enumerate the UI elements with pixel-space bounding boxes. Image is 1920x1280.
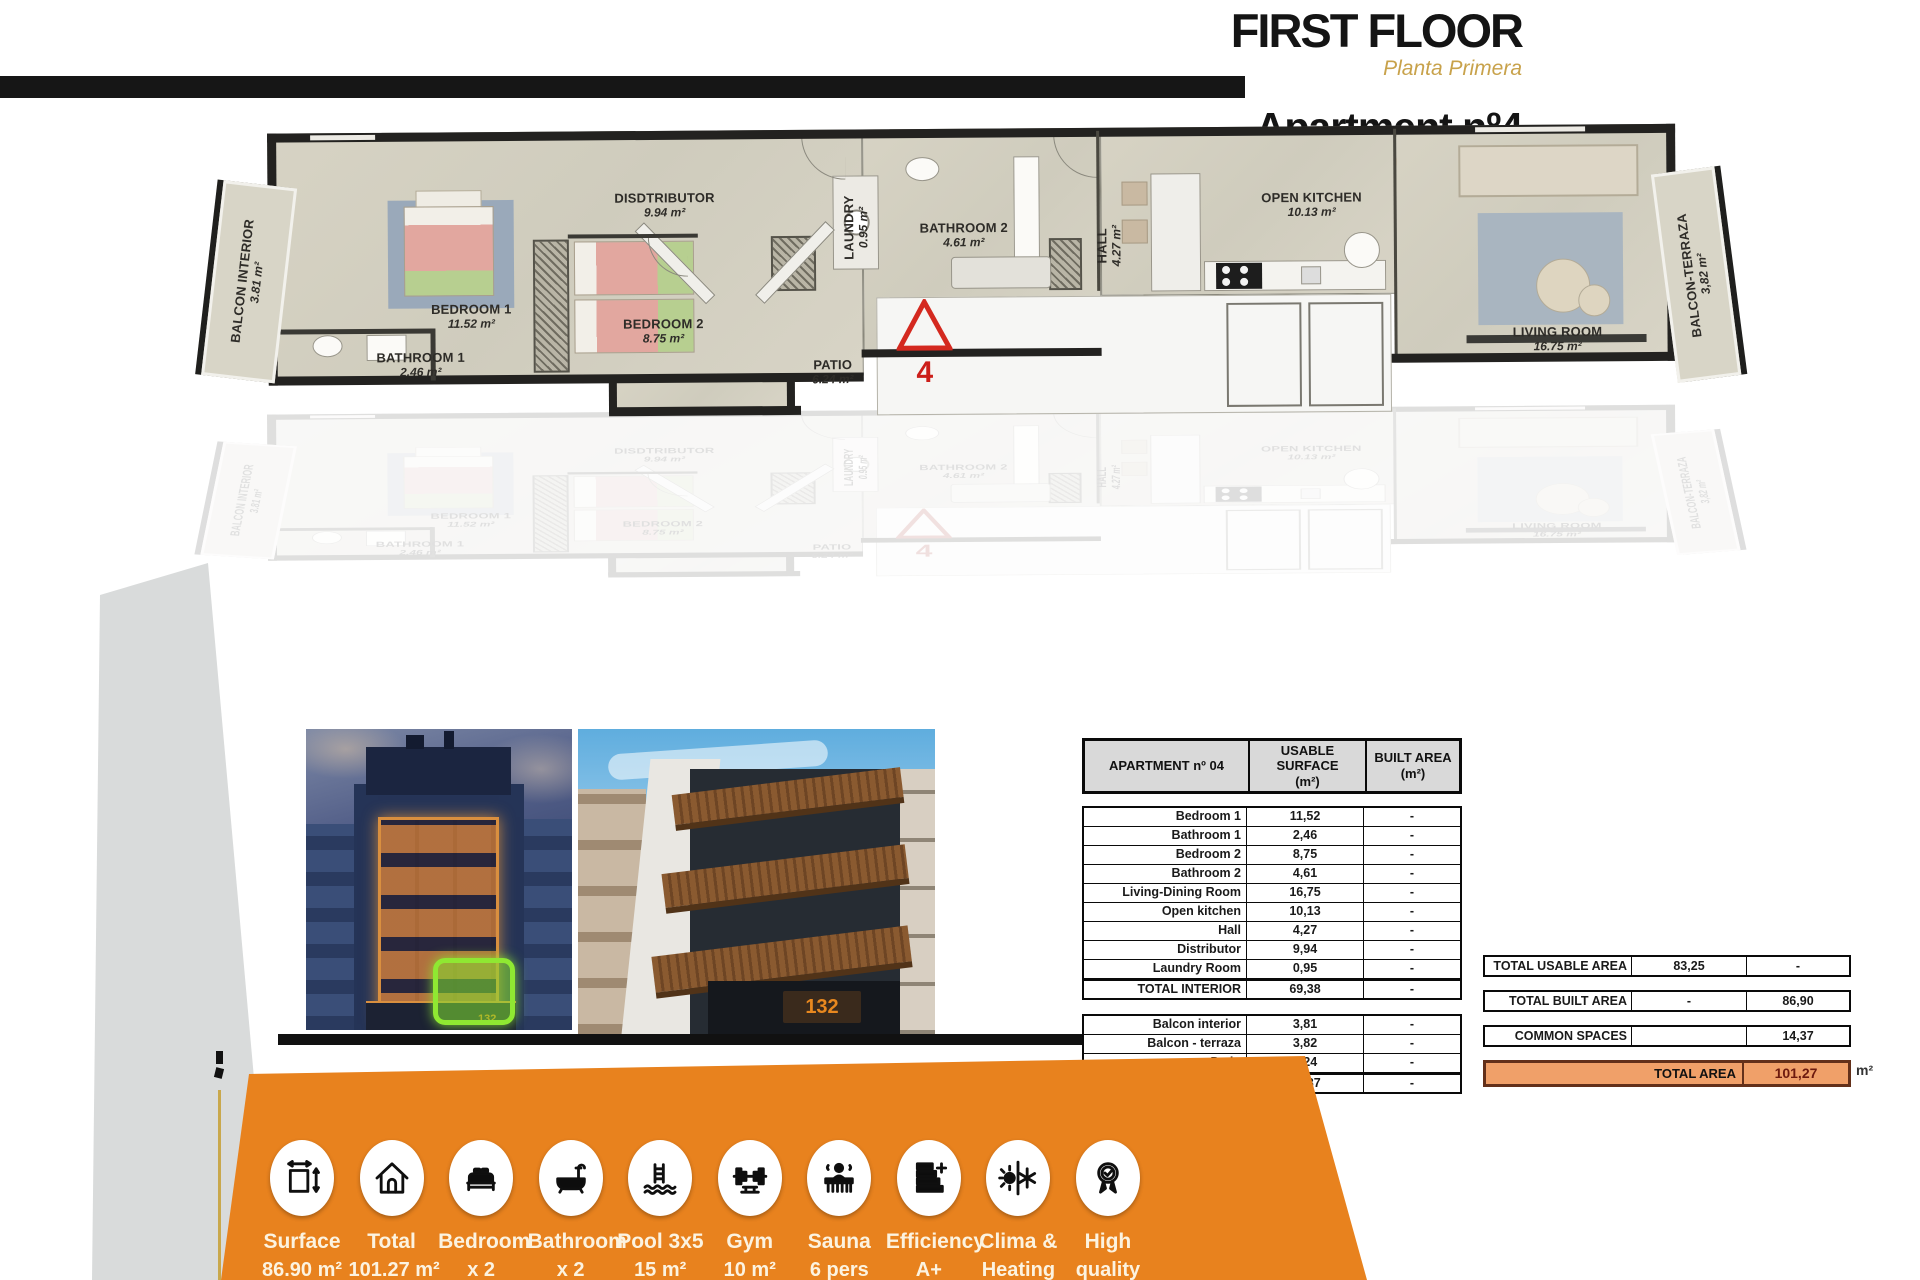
apartment-highlight-box xyxy=(433,958,515,1025)
amenity-value: 10 m² xyxy=(707,1259,793,1280)
wall xyxy=(787,376,795,412)
amenity-label: Sauna xyxy=(796,1230,882,1253)
room-label-bathroom2: BATHROOM 2 4.61 m² xyxy=(919,220,1008,250)
table-row: Distributor 9,94 - xyxy=(1084,941,1460,960)
kitchen-boiler xyxy=(1343,468,1379,489)
amenity-badge xyxy=(270,1140,334,1216)
high-quality-icon xyxy=(1088,1158,1128,1198)
room-label-patio: PATIO 6.24 m² xyxy=(811,542,852,559)
usable-surface-column-header: USABLE SURFACE (m²) xyxy=(1248,741,1365,791)
living-sofa xyxy=(1458,144,1638,197)
day-render-photo: 132 xyxy=(578,729,935,1034)
triangle-marker-icon xyxy=(896,508,952,539)
amenity-value: Heating xyxy=(975,1259,1061,1280)
built-area-column-header: BUILT AREA (m²) xyxy=(1365,741,1459,791)
amenity-value: 15 m² xyxy=(617,1259,703,1280)
totals-row: COMMON SPACES 14,37 xyxy=(1483,1025,1851,1047)
kitchen-stove xyxy=(1216,487,1262,502)
amenity-item: Surface 86.90 m² xyxy=(259,1140,345,1280)
total-area-value: 101,27 xyxy=(1744,1063,1848,1084)
table-row: Bathroom 2 4,61 - xyxy=(1084,865,1460,884)
apartment-number: 4 xyxy=(896,543,952,561)
surface-table-header: APARTMENT nº 04 USABLE SURFACE (m²) BUIL… xyxy=(1082,738,1462,794)
table-row: Open kitchen 10,13 - xyxy=(1084,903,1460,922)
decoration-gold-line xyxy=(218,1090,221,1280)
floor-subtitle: Planta Primera xyxy=(1231,57,1522,81)
bedroom1-bed xyxy=(403,456,493,509)
table-row: Balcon - terraza 3,82 - xyxy=(1084,1035,1460,1054)
totals-row: TOTAL BUILT AREA - 86,90 xyxy=(1483,990,1851,1012)
room-label-bedroom2: BEDROOM 2 8.75 m² xyxy=(623,316,704,346)
amenity-label: Bathroom xyxy=(528,1230,614,1253)
kitchen-sink xyxy=(1301,488,1321,499)
table-row: Living-Dining Room 16,75 - xyxy=(1084,884,1460,903)
room-label-hall: HALL 4.27 m² xyxy=(1094,465,1123,489)
climate-heating-icon xyxy=(998,1158,1038,1198)
building-wing xyxy=(306,824,361,1030)
bathtub-icon xyxy=(551,1158,591,1198)
living-sofa xyxy=(1458,417,1638,448)
table-row: Balcon interior 3,81 - xyxy=(1084,1016,1460,1035)
table-row: Bathroom 1 2,46 - xyxy=(1084,827,1460,846)
wall xyxy=(609,406,801,416)
amenity-item: Sauna 6 pers xyxy=(796,1140,882,1280)
amenity-value: x 2 xyxy=(438,1259,524,1280)
dimensions-icon xyxy=(282,1158,322,1198)
amenity-label: Clima & xyxy=(975,1230,1061,1253)
kitchen-island xyxy=(1150,435,1200,504)
kitchen-stool xyxy=(1121,181,1147,205)
room-label-distributor: DISDTRIBUTOR 9.94 m² xyxy=(614,190,715,220)
apartment-number-marker: 4 xyxy=(896,508,952,560)
amenity-value: A+ xyxy=(886,1259,972,1280)
building-wing xyxy=(518,819,572,1030)
kitchen-boiler xyxy=(1344,232,1380,268)
energy-efficiency-icon xyxy=(909,1158,949,1198)
amenity-label: High xyxy=(1065,1230,1151,1253)
floor-plan: 4 xyxy=(215,397,1726,582)
kitchen-stool xyxy=(1121,440,1147,454)
neighbor-building xyxy=(896,769,935,1034)
kitchen-stool xyxy=(1121,462,1147,476)
room-label-laundry: LAUNDRY 0.95 m² xyxy=(841,449,870,487)
bathroom2-shower xyxy=(951,256,1051,289)
room-label-bedroom2: BEDROOM 2 8.75 m² xyxy=(623,519,704,536)
amenity-value: x 2 xyxy=(528,1259,614,1280)
amenity-badge xyxy=(986,1140,1050,1216)
triangle-marker-icon xyxy=(896,299,952,351)
wall xyxy=(1392,352,1677,363)
bed-icon xyxy=(461,1158,501,1198)
elevator-shaft xyxy=(1226,509,1301,570)
amenity-item: Gym 10 m² xyxy=(707,1140,793,1280)
gym-icon xyxy=(730,1158,770,1198)
room-label-bedroom1: BEDROOM 1 11.52 m² xyxy=(430,511,511,528)
amenity-label: Gym xyxy=(707,1230,793,1253)
window xyxy=(1475,126,1585,132)
amenity-label: Bedroom xyxy=(438,1230,524,1253)
floor-title: FIRST FLOOR xyxy=(1231,6,1522,55)
amenity-item: Total 101.27 m² xyxy=(349,1140,435,1280)
room-label-open-kitchen: OPEN KITCHEN 10.13 m² xyxy=(1261,189,1362,219)
building-number-sign: 132 xyxy=(805,996,838,1019)
bathroom2-toilet xyxy=(905,157,939,181)
amenity-badge xyxy=(360,1140,424,1216)
elevator-shaft xyxy=(1308,509,1383,570)
total-area-row: TOTAL AREA 101,27 xyxy=(1483,1060,1851,1087)
table-row: Laundry Room 0,95 - xyxy=(1084,960,1460,979)
amenity-item: Bedroom x 2 xyxy=(438,1140,524,1280)
amenity-label: Efficiency xyxy=(886,1230,972,1253)
wall xyxy=(608,555,616,576)
amenity-badge xyxy=(718,1140,782,1216)
header-divider-bar xyxy=(0,76,1245,98)
elevator-shaft xyxy=(1308,302,1384,407)
amenity-item: High quality xyxy=(1065,1140,1151,1280)
kitchen-island xyxy=(1150,173,1201,291)
wardrobe xyxy=(1048,473,1081,503)
floor-plan: 4 xyxy=(215,111,1727,422)
room-label-bathroom2: BATHROOM 2 4.61 m² xyxy=(919,462,1008,479)
decoration-tick xyxy=(216,1051,223,1064)
amenity-value: quality xyxy=(1065,1259,1151,1280)
building-number-signbox: 132 xyxy=(783,991,861,1023)
pool-ladder-icon xyxy=(640,1158,680,1198)
wall xyxy=(1096,411,1100,504)
room-label-living-room: LIVING ROOM 16.75 m² xyxy=(1512,521,1602,538)
kitchen-stove xyxy=(1216,263,1262,289)
amenity-label: Total xyxy=(349,1230,435,1253)
totals-row: TOTAL USABLE AREA 83,25 - xyxy=(1483,955,1851,977)
amenity-badge xyxy=(897,1140,961,1216)
brochure-page: FIRST FLOOR Planta Primera Apartment nº4… xyxy=(0,0,1920,1280)
amenity-badge xyxy=(539,1140,603,1216)
table-row: Bedroom 2 8,75 - xyxy=(1084,846,1460,865)
room-label-hall: HALL 4.27 m² xyxy=(1094,225,1123,267)
building-roof xyxy=(366,747,511,795)
night-render-photo: 132 xyxy=(306,729,572,1030)
totals-table: TOTAL USABLE AREA 83,25 - TOTAL BUILT AR… xyxy=(1483,955,1851,1087)
apartment-number: 4 xyxy=(897,358,953,388)
amenity-item: Efficiency A+ xyxy=(886,1140,972,1280)
bathroom2-shower xyxy=(951,483,1051,502)
surface-table-title: APARTMENT nº 04 xyxy=(1085,741,1248,791)
table-row: Bedroom 1 11,52 - xyxy=(1084,808,1460,827)
room-label-open-kitchen: OPEN KITCHEN 10.13 m² xyxy=(1261,444,1362,462)
table-row: TOTAL INTERIOR 69,38 - xyxy=(1084,979,1460,998)
window xyxy=(310,135,375,140)
interior-rows-table: Bedroom 1 11,52 - Bathroom 1 2,46 - Bedr… xyxy=(1082,806,1462,1000)
kitchen-stool xyxy=(1122,219,1148,243)
side-table xyxy=(1578,284,1610,316)
amenity-value: 101.27 m² xyxy=(349,1259,435,1280)
amenity-label: Pool 3x5 xyxy=(617,1230,703,1253)
elevator-shaft xyxy=(1226,302,1302,407)
wardrobe xyxy=(532,475,569,552)
apartment-number-marker: 4 xyxy=(896,299,953,388)
amenity-item: Bathroom x 2 xyxy=(528,1140,614,1280)
room-label-bedroom1: BEDROOM 1 11.52 m² xyxy=(431,301,512,331)
wardrobe xyxy=(1049,238,1082,290)
amenities-row: Surface 86.90 m² Total 101.27 m² Bedroom xyxy=(259,1140,1151,1280)
sauna-icon xyxy=(819,1158,859,1198)
wardrobe xyxy=(533,240,570,373)
kitchen-sink xyxy=(1301,266,1321,284)
room-label-bathroom1: BATHROOM 1 2.46 m² xyxy=(376,350,465,380)
room-label-bathroom1: BATHROOM 1 2.46 m² xyxy=(376,539,465,556)
bedroom1-bed xyxy=(404,206,495,297)
amenity-badge xyxy=(449,1140,513,1216)
amenity-badge xyxy=(628,1140,692,1216)
wall xyxy=(609,377,617,413)
room-label-living-room: LIVING ROOM 16.75 m² xyxy=(1513,324,1603,354)
house-icon xyxy=(372,1158,412,1198)
amenity-label: Surface xyxy=(259,1230,345,1253)
room-label-distributor: DISDTRIBUTOR 9.94 m² xyxy=(614,446,715,464)
bathroom1-toilet xyxy=(312,335,342,357)
amenity-badge xyxy=(1076,1140,1140,1216)
amenities-banner: Surface 86.90 m² Total 101.27 m² Bedroom xyxy=(215,1056,1380,1280)
amenity-item: Clima & Heating xyxy=(975,1140,1061,1280)
amenity-value: 86.90 m² xyxy=(259,1259,345,1280)
wall xyxy=(608,571,800,578)
amenity-value: 6 pers xyxy=(796,1259,882,1280)
amenity-badge xyxy=(807,1140,871,1216)
amenity-item: Pool 3x5 15 m² xyxy=(617,1140,703,1280)
total-area-label: TOTAL AREA xyxy=(1486,1063,1744,1084)
wall xyxy=(786,554,794,575)
room-label-patio: PATIO 6.24 m² xyxy=(812,357,854,386)
table-row: Hall 4,27 - xyxy=(1084,922,1460,941)
total-area-unit: m² xyxy=(1856,1062,1873,1078)
room-label-laundry: LAUNDRY 0.95 m² xyxy=(841,195,870,260)
